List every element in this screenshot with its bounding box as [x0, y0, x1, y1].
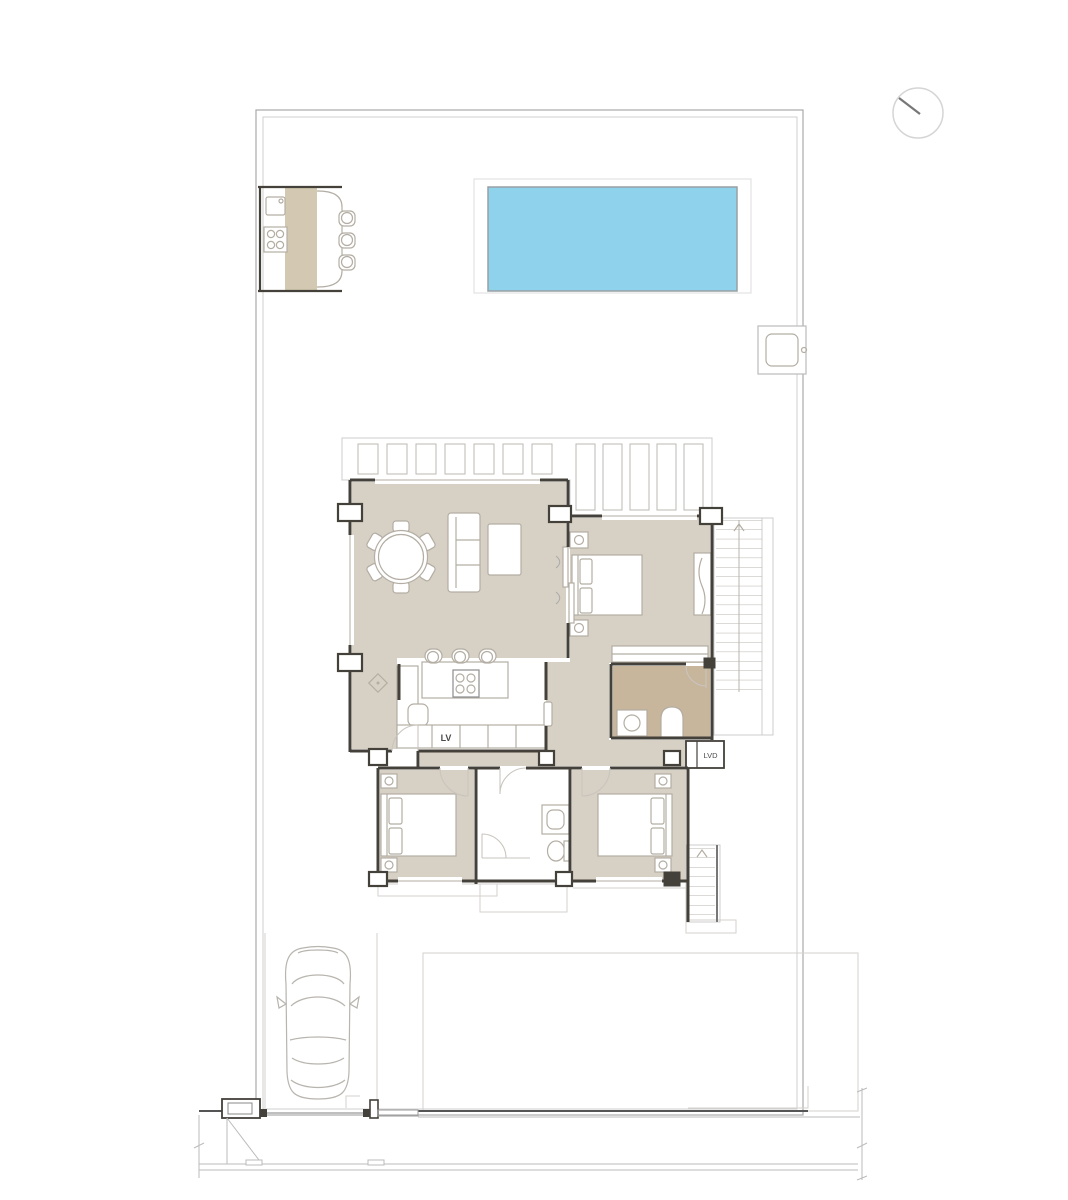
- staircase-lower: [686, 845, 720, 922]
- gate-post: [370, 1100, 378, 1118]
- washer-label: LVD: [703, 751, 718, 760]
- bed: [381, 794, 456, 856]
- car-mirror-icon: [277, 997, 359, 1008]
- kitchen-counter-south: [397, 725, 546, 748]
- gate-pillar: [222, 1099, 260, 1118]
- terrace-paving: [378, 884, 858, 1111]
- parking-space: [265, 933, 377, 1108]
- nightstand: [381, 774, 397, 788]
- toilet-icon: [548, 841, 570, 861]
- dimension-line: [194, 1088, 867, 1180]
- sink-icon: [542, 805, 569, 834]
- island-cooktop-icon: [453, 670, 479, 697]
- car: [277, 947, 359, 1100]
- nightstand: [381, 858, 397, 872]
- staircase-upper: [714, 518, 773, 735]
- sidewalk: [199, 1164, 858, 1170]
- bbq-cooktop-icon: [264, 227, 287, 252]
- pocket-door-leaf: [544, 702, 552, 726]
- bar-stools: [339, 211, 355, 270]
- outdoor-kitchen: [258, 186, 355, 292]
- kitchen-sink-icon: [408, 704, 428, 726]
- sofa: [448, 513, 480, 592]
- sink-icon: [617, 710, 647, 736]
- bed: [598, 794, 672, 856]
- floor-plan-drawing: LV: [0, 0, 1068, 1200]
- bbq-sink-icon: [266, 197, 285, 215]
- nightstand: [655, 858, 671, 872]
- kitchen-stools: [425, 649, 496, 663]
- master-bed: [572, 555, 642, 615]
- floor-plan-canvas: LV: [0, 0, 1068, 1200]
- pool-water: [488, 187, 737, 291]
- nightstand: [655, 774, 671, 788]
- washer-box: LVD: [686, 741, 724, 768]
- dishwasher-label: LV: [441, 733, 452, 743]
- wardrobe: [694, 553, 711, 615]
- swimming-pool: [474, 179, 751, 293]
- bar-counter: [285, 188, 317, 290]
- street-front: [194, 1088, 867, 1180]
- toilet-icon: [661, 707, 683, 737]
- driveway-ramp: [227, 1118, 262, 1164]
- coffee-table: [488, 524, 521, 575]
- north-indicator-icon: [893, 88, 943, 138]
- nightstand: [570, 532, 588, 548]
- outdoor-shower: [758, 326, 807, 374]
